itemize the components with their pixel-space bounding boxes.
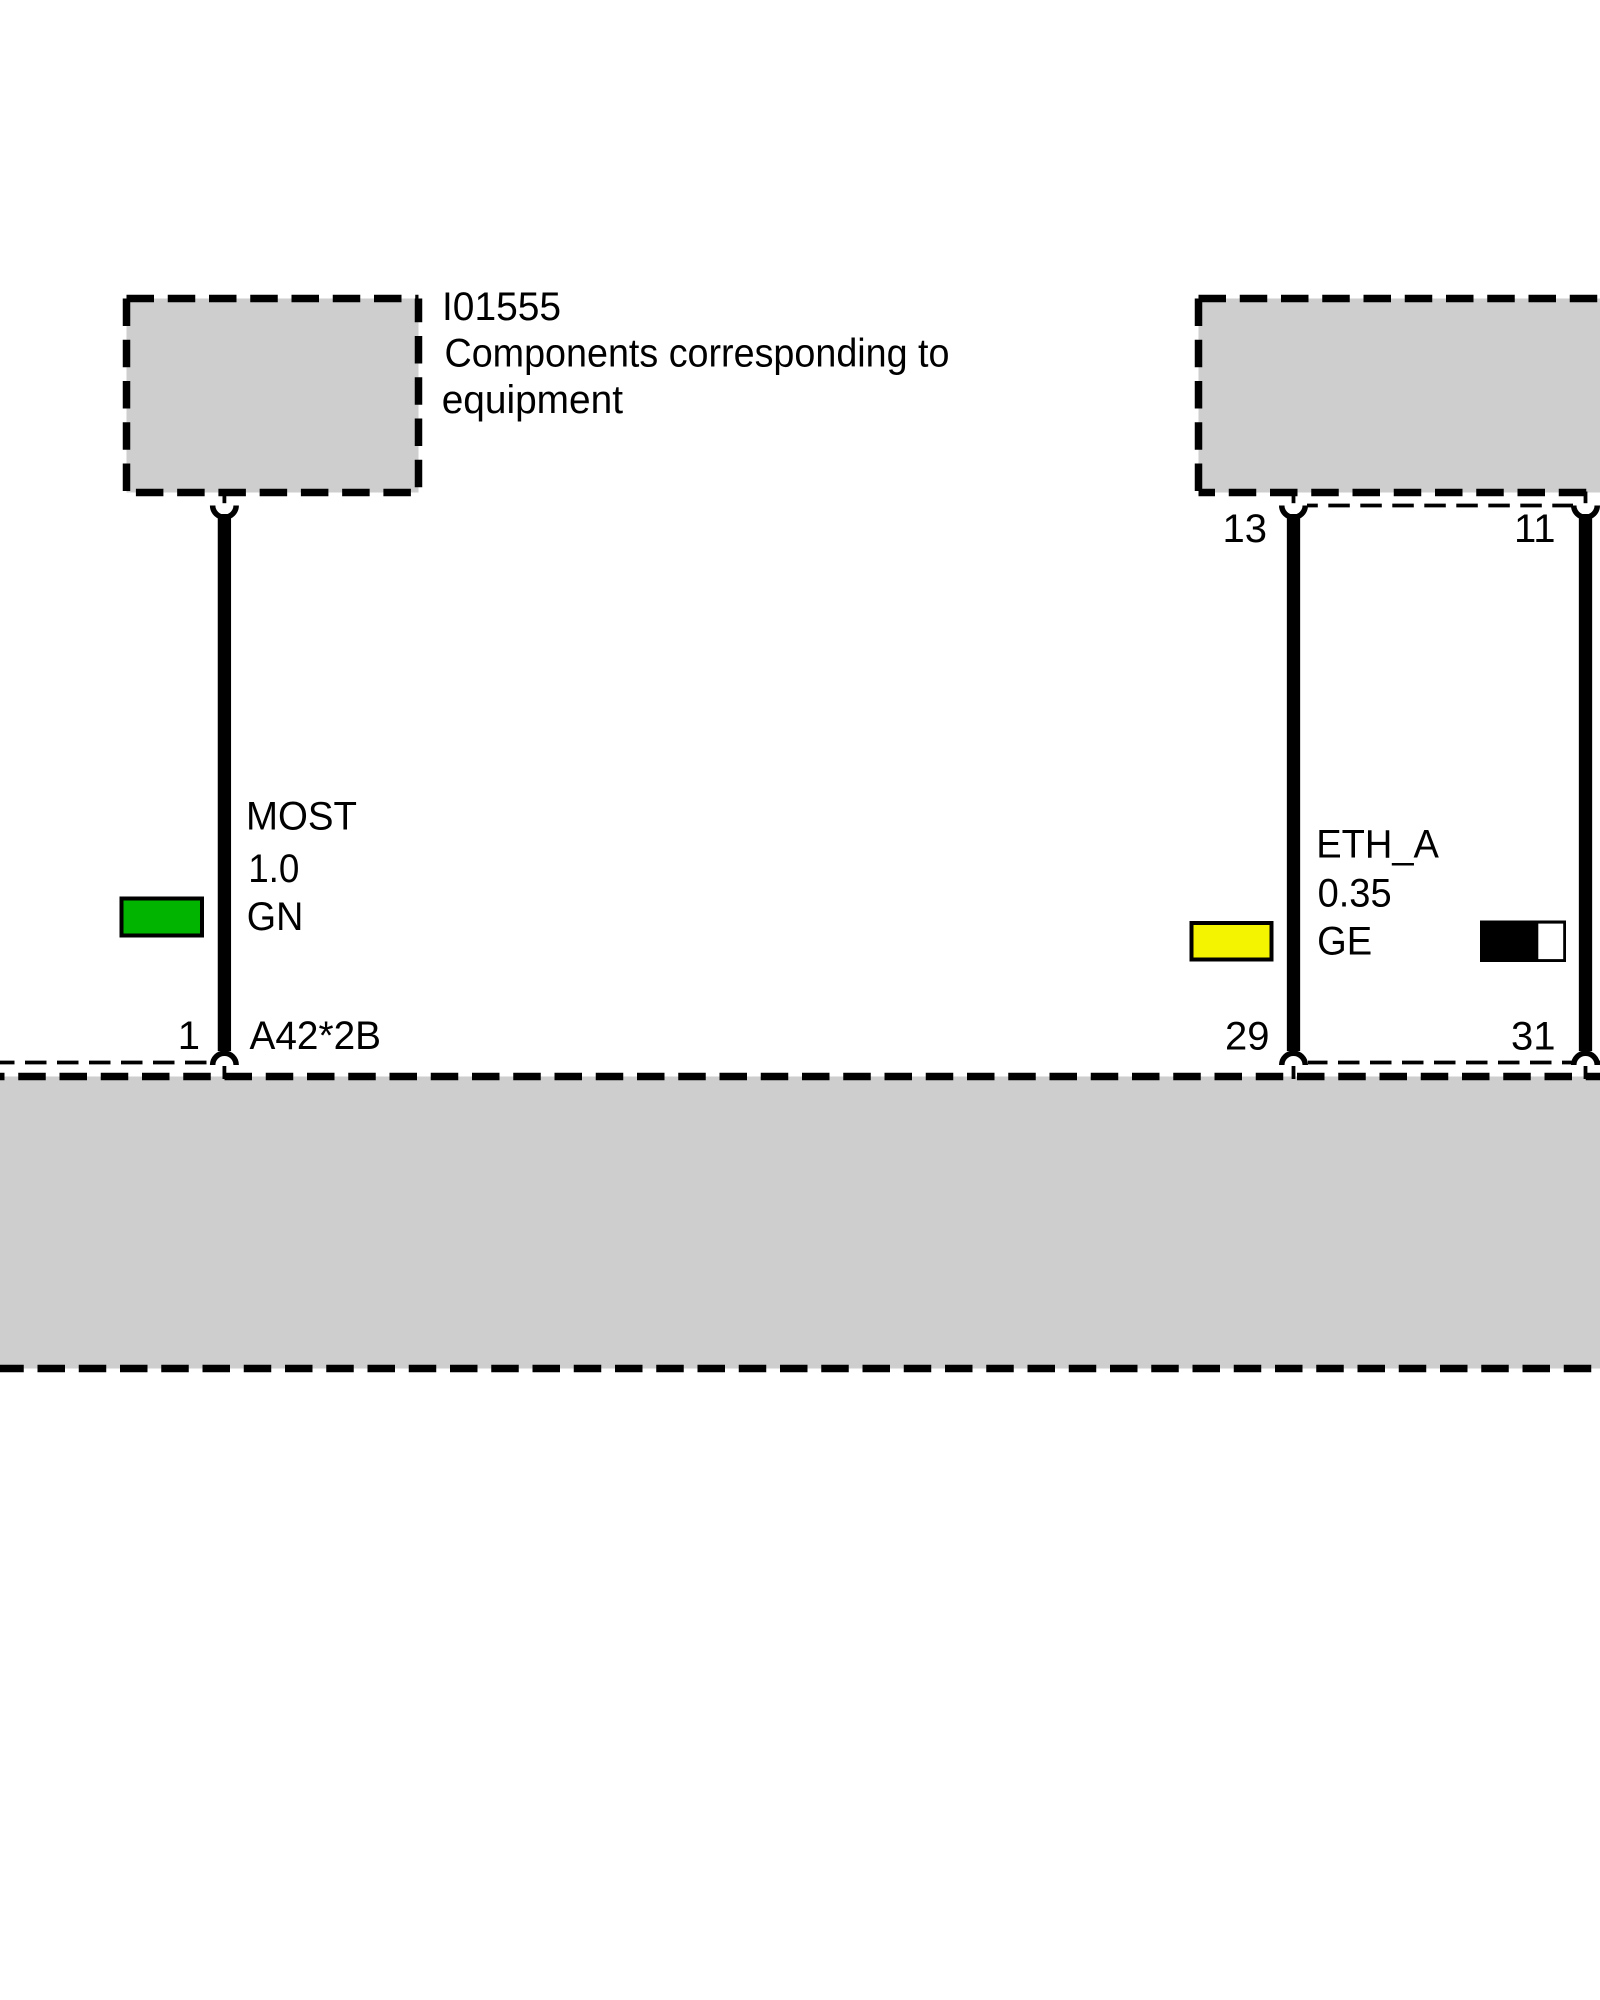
svg-text:0.35: 0.35 (1318, 872, 1392, 916)
svg-text:31: 31 (1511, 1015, 1556, 1059)
svg-text:MOST: MOST (246, 795, 357, 839)
svg-text:GE: GE (1317, 920, 1372, 964)
svg-text:11: 11 (1514, 507, 1556, 551)
svg-text:ETH_A: ETH_A (1316, 823, 1439, 867)
svg-text:13: 13 (1223, 507, 1268, 551)
svg-text:I01555: I01555 (442, 285, 561, 329)
svg-text:A42*2B: A42*2B (250, 1014, 382, 1058)
svg-text:equipment: equipment (442, 378, 623, 422)
svg-text:GN: GN (247, 895, 303, 939)
svg-text:Components corresponding to: Components corresponding to (445, 332, 950, 376)
svg-text:29: 29 (1225, 1015, 1270, 1059)
svg-text:1: 1 (178, 1014, 200, 1058)
svg-text:1.0: 1.0 (248, 847, 299, 891)
